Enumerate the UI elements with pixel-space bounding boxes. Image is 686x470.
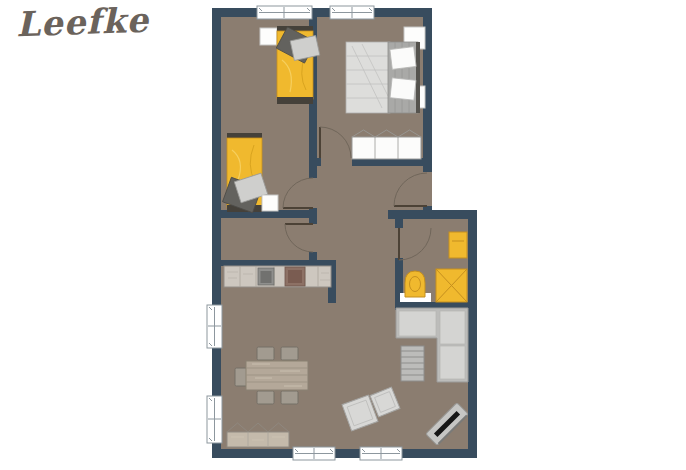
window-bottom-1 bbox=[293, 447, 335, 460]
single-bed-2 bbox=[223, 133, 268, 213]
floorplan-canvas: Leefke bbox=[0, 0, 686, 470]
window-bottom-2 bbox=[360, 447, 402, 460]
sink bbox=[258, 268, 274, 285]
window-top-1 bbox=[257, 6, 312, 19]
dining-table bbox=[246, 361, 308, 390]
window-left-1 bbox=[207, 305, 222, 348]
window-left-2 bbox=[207, 396, 222, 443]
slatted-side-table bbox=[401, 346, 424, 381]
single-bed-1 bbox=[276, 26, 320, 104]
double-bed bbox=[346, 42, 420, 113]
washbasin bbox=[449, 232, 467, 258]
dining-chair bbox=[281, 391, 298, 404]
dining-chair bbox=[257, 347, 274, 360]
window-top-2 bbox=[330, 6, 374, 19]
nightstand bbox=[260, 28, 277, 45]
room-bedroom-master bbox=[346, 27, 425, 159]
entrance-opening bbox=[423, 172, 432, 206]
dining-chair bbox=[281, 347, 298, 360]
shower bbox=[436, 269, 467, 302]
nightstand bbox=[262, 195, 278, 211]
toilet bbox=[405, 271, 425, 297]
stove bbox=[285, 267, 305, 286]
floorplan-drawing bbox=[0, 0, 686, 470]
dining-chair bbox=[257, 391, 274, 404]
kitchen-counter bbox=[224, 266, 331, 287]
